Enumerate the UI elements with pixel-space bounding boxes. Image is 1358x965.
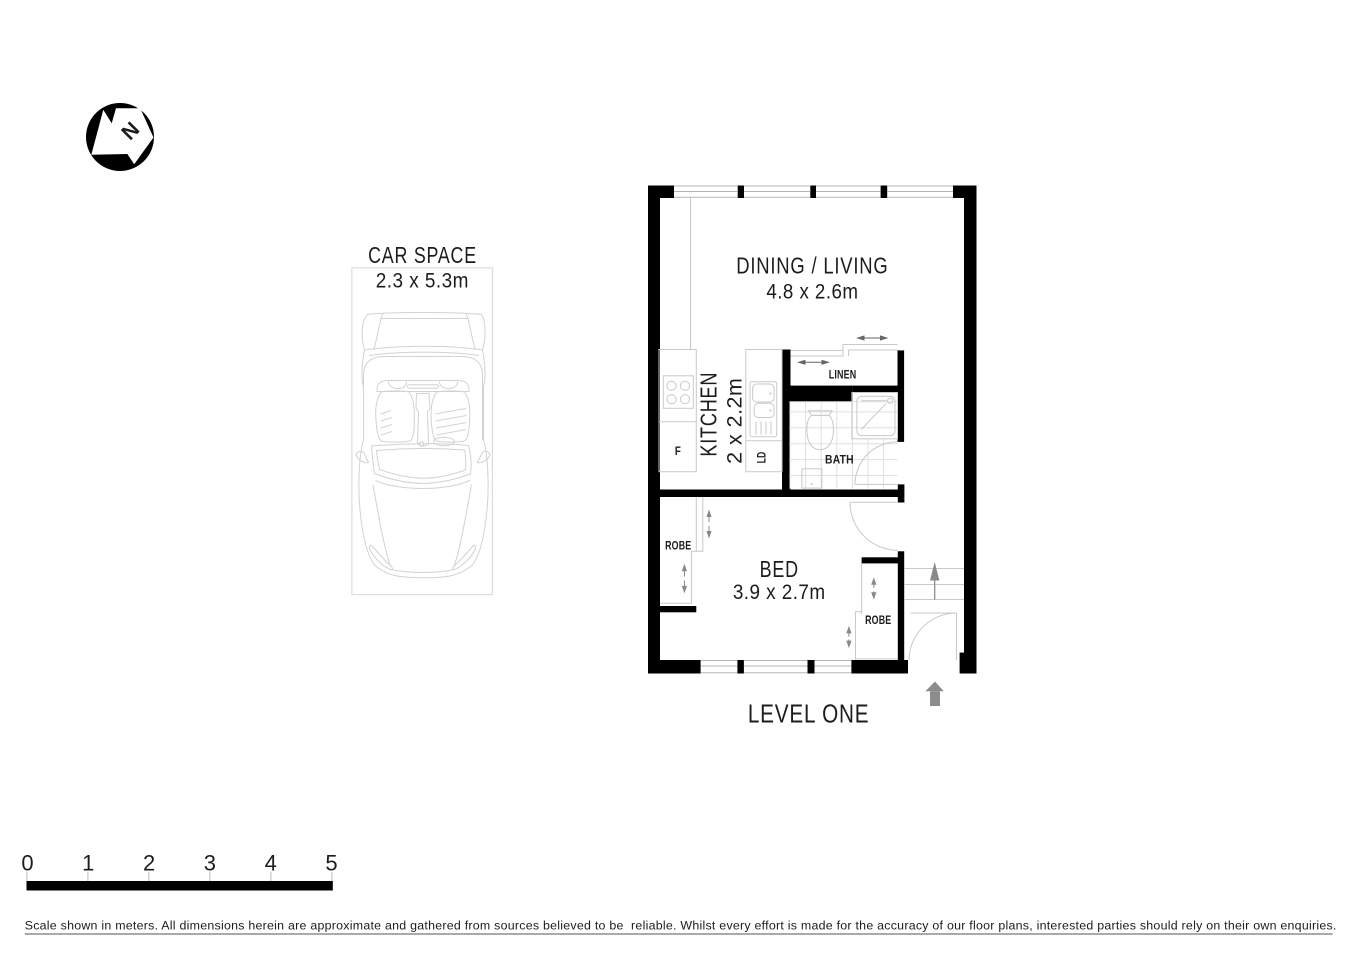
svg-text:3: 3	[204, 851, 216, 876]
svg-text:ROBE: ROBE	[665, 540, 691, 552]
svg-text:LD: LD	[756, 452, 768, 464]
svg-text:DINING / LIVING: DINING / LIVING	[736, 254, 888, 279]
svg-text:Scale shown in meters. All dim: Scale shown in meters. All dimensions he…	[25, 919, 1337, 933]
svg-text:F: F	[675, 445, 681, 458]
svg-text:CAR SPACE: CAR SPACE	[368, 243, 477, 269]
svg-text:LEVEL ONE: LEVEL ONE	[748, 699, 870, 728]
svg-text:4.8 x 2.6m: 4.8 x 2.6m	[766, 281, 858, 304]
svg-text:BATH: BATH	[825, 454, 854, 467]
svg-text:5: 5	[325, 851, 337, 876]
svg-text:ROBE: ROBE	[865, 615, 891, 627]
svg-text:2.3 x 5.3m: 2.3 x 5.3m	[376, 270, 469, 293]
svg-text:BED: BED	[760, 557, 799, 583]
svg-text:3.9 x 2.7m: 3.9 x 2.7m	[733, 581, 826, 604]
svg-text:LINEN: LINEN	[829, 370, 857, 382]
svg-text:4: 4	[265, 851, 277, 876]
svg-text:2 x 2.2m: 2 x 2.2m	[724, 378, 747, 464]
svg-text:KITCHEN: KITCHEN	[696, 372, 722, 457]
svg-text:1: 1	[82, 851, 94, 876]
svg-text:0: 0	[21, 851, 33, 876]
svg-text:2: 2	[143, 851, 155, 876]
